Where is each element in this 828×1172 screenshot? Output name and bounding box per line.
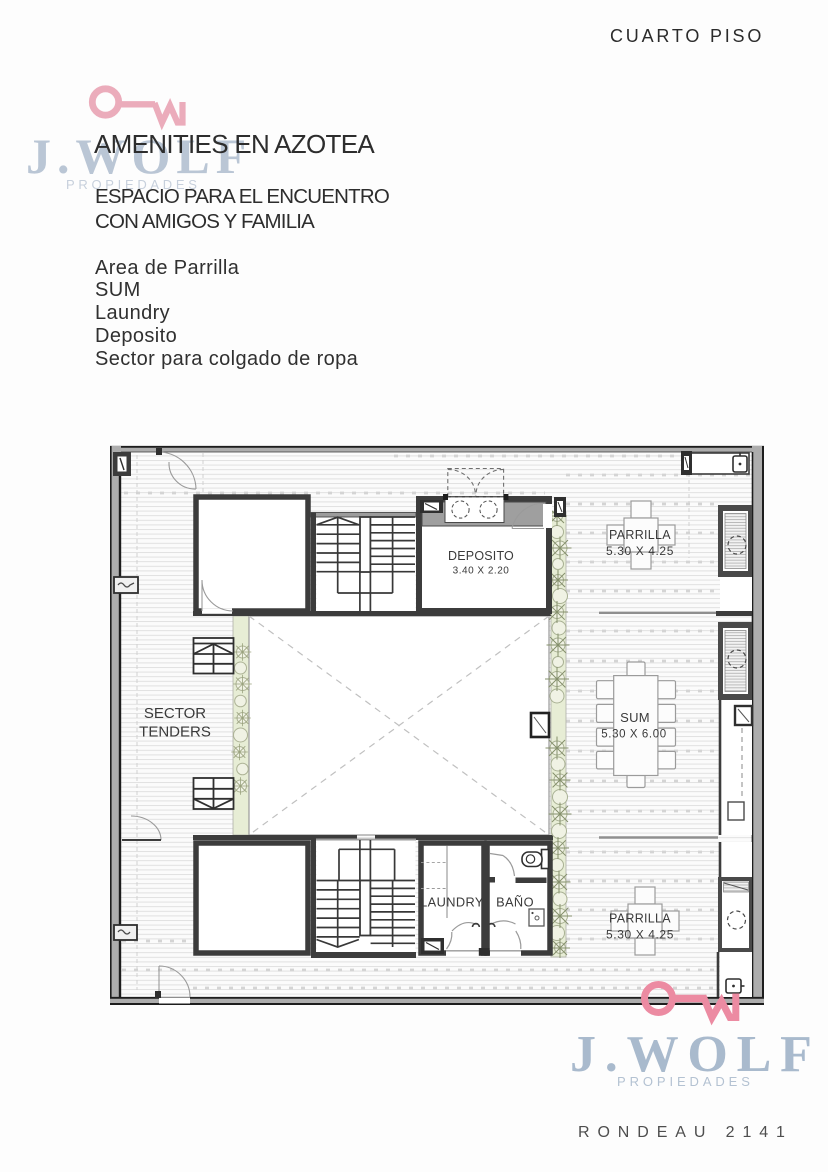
svg-text:5.30 X 6.00: 5.30 X 6.00 bbox=[601, 729, 666, 741]
svg-text:PARRILLA: PARRILLA bbox=[609, 912, 671, 926]
svg-text:PARRILLA: PARRILLA bbox=[609, 528, 671, 542]
svg-text:TENDERS: TENDERS bbox=[139, 724, 211, 741]
svg-text:BAÑO: BAÑO bbox=[496, 895, 534, 910]
svg-text:5.30 X 4.25: 5.30 X 4.25 bbox=[606, 544, 674, 558]
svg-text:SUM: SUM bbox=[620, 710, 650, 725]
svg-text:5.30 X 4.25: 5.30 X 4.25 bbox=[606, 928, 674, 942]
svg-text:DEPOSITO: DEPOSITO bbox=[448, 549, 514, 563]
svg-text:3.40 X 2.20: 3.40 X 2.20 bbox=[453, 566, 510, 577]
svg-text:SECTOR: SECTOR bbox=[144, 705, 206, 722]
svg-text:LAUNDRY: LAUNDRY bbox=[420, 895, 484, 910]
